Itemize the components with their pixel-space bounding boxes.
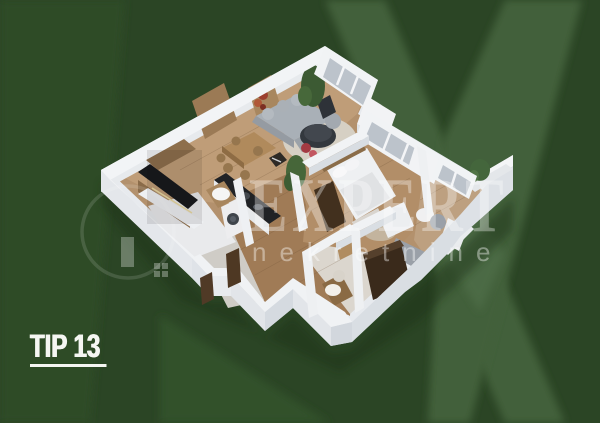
svg-text:EXPERT: EXPERT	[249, 162, 508, 248]
svg-text:nekretnine: nekretnine	[252, 237, 503, 267]
